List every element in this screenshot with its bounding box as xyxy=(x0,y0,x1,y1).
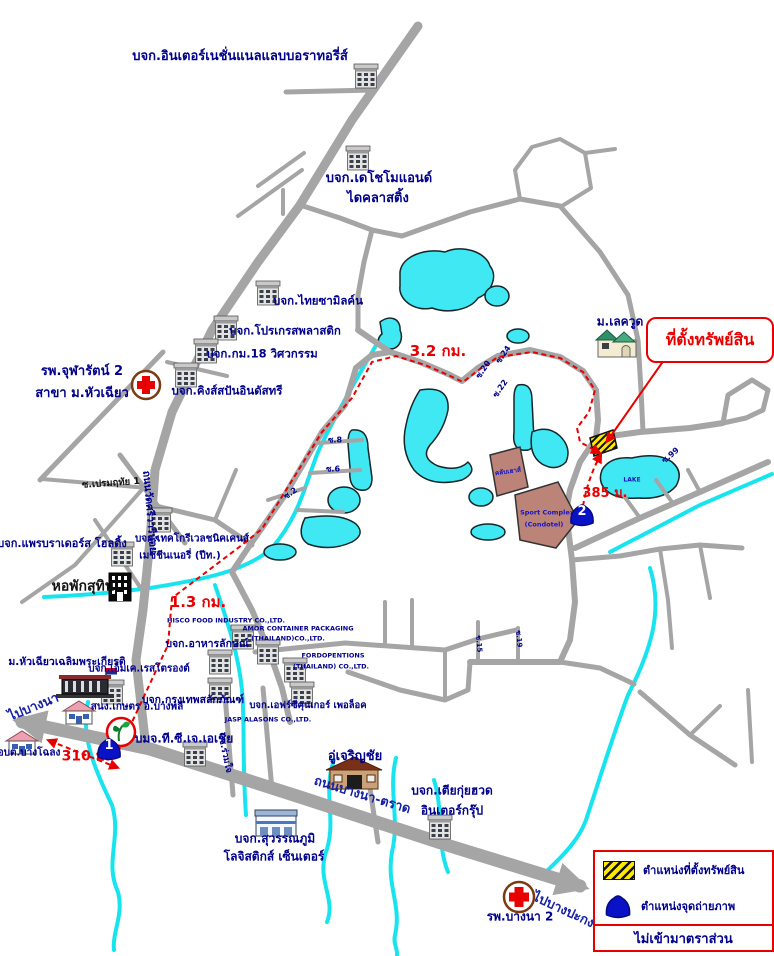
office-building-icon xyxy=(354,64,378,88)
road xyxy=(258,153,304,186)
lake xyxy=(471,524,505,540)
map-label: ซ.19 xyxy=(513,630,522,648)
map-label: Sport Complex xyxy=(520,509,574,516)
office-building-icon xyxy=(428,815,452,839)
map-canvas: ที่ตั้งทรัพย์สิน 1 2 ตำแหน่งที่ตั้งทรัพย… xyxy=(0,0,774,956)
legend-label: ตำแหน่งที่ตั้งทรัพย์สิน xyxy=(643,861,744,879)
legend-row-property: ตำแหน่งที่ตั้งทรัพย์สิน xyxy=(595,852,772,888)
map-label: รพ.บางนา 2 xyxy=(487,910,554,923)
office-building-icon xyxy=(256,640,280,664)
lake xyxy=(400,249,494,311)
lake xyxy=(531,429,568,467)
property-callout-text: ที่ตั้งทรัพย์สิน xyxy=(666,328,755,353)
photo-point-icon xyxy=(603,894,633,919)
lake xyxy=(507,329,529,343)
hospital-cross-icon xyxy=(132,371,160,399)
property-callout-box: ที่ตั้งทรัพย์สิน xyxy=(646,317,774,363)
road xyxy=(585,149,615,153)
photo-point-marker-2: 2 xyxy=(568,503,596,527)
lake xyxy=(469,488,493,506)
road xyxy=(560,662,634,684)
map-label: อู่เจริญชัย xyxy=(328,750,382,764)
map-label: บจก.ไทยซามิลค์น xyxy=(273,295,363,308)
lake xyxy=(301,516,360,548)
map-label: อบต.บางโฉลง xyxy=(0,748,60,759)
road xyxy=(358,230,372,330)
road xyxy=(298,510,343,512)
map-label: ซ.6 xyxy=(326,466,340,475)
road xyxy=(688,470,700,492)
map-label: บจก.แพรบราเดอร์ส โฮลดิ้ง xyxy=(0,538,127,550)
map-label: สาขา ม.หัวเฉียว xyxy=(35,387,129,401)
map-label: 1.3 กม. xyxy=(170,594,226,611)
lake xyxy=(404,389,472,482)
map-label: บจก.โปรเกรสพลาสติก xyxy=(229,325,341,338)
map-label: บจก.อาหารลักษณ์ xyxy=(165,639,248,651)
map-label: บจก.สุวรรณภูมิ xyxy=(235,832,315,845)
map-label: ไดคลาสติ้ง xyxy=(347,192,409,206)
map-label: บจก.กม.18 วิศวกรรม xyxy=(206,348,317,361)
road xyxy=(515,139,591,206)
map-label: อินเตอร์กรุ๊ป xyxy=(421,804,483,817)
road xyxy=(300,199,560,236)
road xyxy=(215,470,236,520)
road xyxy=(700,545,710,598)
map-label: ซ.8 xyxy=(328,437,342,446)
road xyxy=(660,549,672,648)
map-legend: ตำแหน่งที่ตั้งทรัพย์สิน ตำแหน่งจุดถ่ายภา… xyxy=(593,850,774,952)
map-label: AMOR CONTAINER PACKAGING xyxy=(242,625,353,632)
lake xyxy=(485,286,509,306)
map-label: บจก.เดโชโมแอนด์ xyxy=(326,172,432,186)
legend-row-photo-point: ตำแหน่งจุดถ่ายภาพ xyxy=(595,888,772,924)
map-label: (THAILAND) CO.,LTD. xyxy=(293,663,369,670)
map-label: ม.เลควูด xyxy=(597,315,643,328)
road xyxy=(345,350,598,438)
lake xyxy=(328,487,360,513)
marker-number: 2 xyxy=(568,504,596,519)
legend-scale-note: ไม่เข้ามาตราส่วน xyxy=(595,924,772,950)
stream xyxy=(391,758,398,955)
road xyxy=(286,90,374,92)
map-label: บจก.อินเตอร์เนชั่นแนลแลบบอราทอรี่ส์ xyxy=(132,50,348,64)
lakewood-village-icon xyxy=(596,330,636,357)
map-label: บจก.เอ็มเค.เรสโตรองต์ xyxy=(88,664,190,675)
office-building-icon xyxy=(183,742,207,766)
property-location-swatch xyxy=(603,861,635,880)
road xyxy=(748,690,752,762)
map-label: สนง.เกษตร อ.บางพลี xyxy=(91,702,183,713)
legend-label: ตำแหน่งจุดถ่ายภาพ xyxy=(641,897,735,915)
map-label: หอพักสุทิน xyxy=(52,579,115,594)
road xyxy=(723,380,768,423)
map-label: บจก.เทคโกรีเวลชนิคเคนส์ xyxy=(135,534,249,545)
office-building-icon xyxy=(346,146,370,170)
map-label: บจก.คิงส์สปันอินดัสทรี xyxy=(172,385,283,398)
map-label: โลจิสติกส์ เซ็นเตอร์ xyxy=(224,850,325,863)
map-label: 385 ม. xyxy=(582,487,627,501)
road xyxy=(690,706,720,735)
map-label: เมชชีนเนอรี่ (ปีท.) xyxy=(139,551,220,562)
map-label: บจก.เอฟร์ซีคุนเกอร์ เพอล็อค xyxy=(249,701,366,711)
map-label: รพ.จุฬารัตน์ 2 xyxy=(41,365,123,379)
lake xyxy=(264,544,296,560)
map-label: (Condotel) xyxy=(525,521,564,528)
map-label: JASP ALASONS CO.,LTD. xyxy=(225,716,311,723)
office-building-icon xyxy=(208,650,232,674)
road xyxy=(560,438,596,662)
map-label: บจก.เตียกุ่ยฮวด xyxy=(411,784,493,797)
map-label: LAKE xyxy=(623,478,640,485)
map-label: 3.2 กม. xyxy=(410,343,466,360)
marker-number: 1 xyxy=(95,738,123,753)
map-label: FORDOPENTIONS xyxy=(301,652,364,659)
road xyxy=(640,692,735,765)
stream xyxy=(546,568,656,872)
map-label: ซ.15 xyxy=(473,635,482,653)
hospital-cross-icon xyxy=(504,882,534,912)
map-label: (THAILAND)CO.,LTD. xyxy=(251,635,325,642)
road xyxy=(572,545,742,560)
photo-point-marker-1: 1 xyxy=(95,737,123,761)
